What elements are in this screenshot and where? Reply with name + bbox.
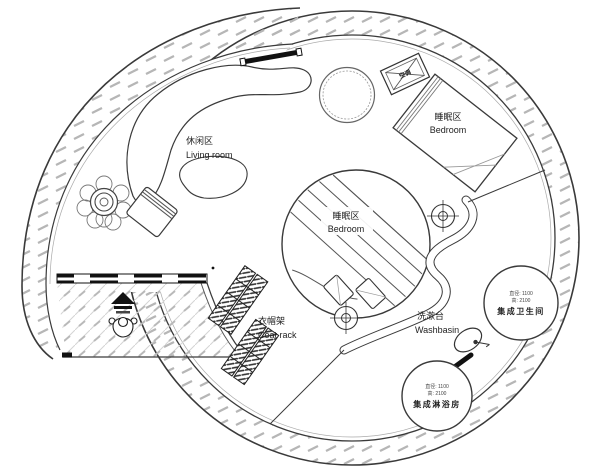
washbasin-label-zh: 洗漱台 [417, 310, 444, 321]
floor-plan-drawing: 空调 睡眠区 Bedroom [0, 0, 611, 473]
shower-pod-circle: 直径: 1100 高: 2100 集成淋浴房 [402, 361, 472, 431]
bedroom-center-label-zh: 睡眠区 [332, 210, 359, 221]
entry-window-wall [57, 274, 207, 283]
shower-pod-label: 集成淋浴房 [412, 399, 461, 409]
living-room-label-zh: 休闲区 [186, 135, 213, 146]
plan-dot [212, 267, 215, 270]
bedroom-upper-label-en: Bedroom [430, 125, 467, 135]
coat-rack-label-en: Coat rack [258, 330, 297, 340]
coat-rack-label-zh: 衣帽架 [258, 315, 285, 326]
living-room-label-en: Living room [186, 150, 233, 160]
bathroom-dim-diameter: 直径: 1100 [509, 290, 533, 297]
shower-dim-diameter: 直径: 1100 [425, 383, 449, 390]
bathroom-dim-height: 高: 2100 [512, 297, 531, 304]
washbasin-label-en: Washbasin [415, 325, 459, 335]
shower-dim-height: 高: 2100 [428, 390, 447, 397]
bathroom-pod-label: 集成卫生间 [496, 306, 545, 316]
bedroom-center-label-en: Bedroom [328, 224, 365, 234]
bathroom-pod-circle: 直径: 1100 高: 2100 集成卫生间 [484, 266, 558, 340]
floor-plan-page: 空调 睡眠区 Bedroom [0, 0, 611, 473]
round-table [320, 68, 375, 123]
wall-end-cap [62, 353, 72, 358]
bedroom-upper-label-zh: 睡眠区 [434, 111, 461, 122]
